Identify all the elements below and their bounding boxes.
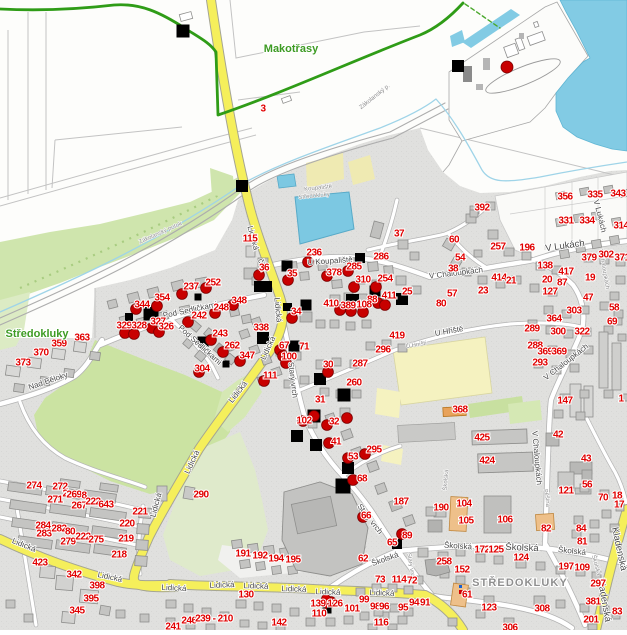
svg-text:322: 322 — [574, 327, 590, 338]
svg-text:152: 152 — [454, 565, 470, 576]
svg-text:221: 221 — [132, 507, 148, 518]
svg-text:83: 83 — [612, 607, 623, 618]
svg-text:389: 389 — [340, 301, 356, 312]
svg-text:56: 56 — [582, 480, 593, 491]
svg-text:354: 354 — [154, 293, 170, 304]
svg-text:242: 242 — [191, 311, 207, 322]
svg-text:Makotřasy: Makotřasy — [264, 43, 319, 55]
svg-text:47: 47 — [583, 293, 594, 304]
svg-text:296: 296 — [375, 345, 391, 356]
svg-text:302: 302 — [598, 250, 614, 261]
svg-text:243: 243 — [212, 329, 228, 340]
svg-text:356: 356 — [557, 192, 573, 203]
svg-text:87: 87 — [557, 278, 568, 289]
svg-text:30: 30 — [323, 360, 334, 371]
svg-text:290: 290 — [193, 490, 209, 501]
svg-text:65: 65 — [387, 538, 398, 549]
svg-text:308: 308 — [534, 604, 550, 615]
svg-text:297: 297 — [590, 579, 606, 590]
svg-text:326: 326 — [158, 322, 174, 333]
svg-text:381: 381 — [585, 597, 601, 608]
svg-text:109: 109 — [574, 563, 590, 574]
svg-text:286: 286 — [373, 252, 389, 263]
svg-text:126: 126 — [327, 599, 343, 610]
svg-text:123: 123 — [481, 603, 497, 614]
svg-text:STŘEDOKLUKY: STŘEDOKLUKY — [472, 576, 568, 589]
svg-text:147: 147 — [557, 396, 573, 407]
svg-text:106: 106 — [497, 515, 513, 526]
svg-text:20: 20 — [542, 275, 553, 286]
svg-text:279: 279 — [60, 537, 76, 548]
svg-text:Středokluky: Středokluky — [6, 328, 70, 340]
svg-text:192: 192 — [252, 551, 268, 562]
svg-text:424: 424 — [479, 456, 495, 467]
svg-text:370: 370 — [33, 348, 49, 359]
svg-text:42: 42 — [553, 430, 564, 441]
svg-text:108: 108 — [356, 300, 372, 311]
svg-text:121: 121 — [558, 486, 574, 497]
svg-text:252: 252 — [205, 278, 221, 289]
svg-text:306: 306 — [502, 623, 518, 631]
svg-text:398: 398 — [89, 581, 105, 592]
svg-text:334: 334 — [579, 216, 595, 227]
svg-text:331: 331 — [558, 216, 574, 227]
svg-text:84: 84 — [576, 524, 587, 535]
svg-text:32: 32 — [329, 417, 340, 428]
svg-text:91: 91 — [420, 598, 431, 609]
svg-text:111: 111 — [263, 371, 278, 382]
svg-text:114: 114 — [392, 575, 408, 586]
svg-text:241: 241 — [165, 622, 181, 631]
svg-text:345: 345 — [69, 606, 85, 617]
svg-text:94: 94 — [409, 598, 420, 609]
svg-text:410: 410 — [323, 299, 339, 310]
svg-text:191: 191 — [235, 549, 251, 560]
svg-text:236: 236 — [306, 248, 322, 259]
svg-text:289: 289 — [524, 324, 540, 335]
svg-text:66: 66 — [361, 511, 372, 522]
svg-text:60: 60 — [449, 235, 460, 246]
svg-text:61: 61 — [462, 590, 473, 601]
svg-text:36: 36 — [259, 263, 270, 274]
svg-text:Lidická: Lidická — [209, 580, 235, 590]
svg-text:Lidická: Lidická — [281, 584, 307, 594]
svg-text:187: 187 — [393, 497, 409, 508]
svg-text:378: 378 — [326, 268, 342, 279]
svg-text:218: 218 — [111, 550, 127, 561]
svg-text:328: 328 — [131, 321, 147, 332]
svg-text:369: 369 — [551, 347, 567, 358]
svg-text:368: 368 — [452, 405, 468, 416]
svg-text:411: 411 — [382, 291, 398, 302]
svg-text:95: 95 — [398, 603, 409, 614]
svg-text:239 - 210: 239 - 210 — [195, 614, 234, 625]
svg-text:58: 58 — [609, 303, 620, 314]
svg-text:34: 34 — [291, 307, 302, 318]
svg-text:344: 344 — [134, 300, 150, 311]
svg-text:219: 219 — [118, 534, 134, 545]
svg-text:110: 110 — [312, 609, 328, 620]
svg-text:80: 80 — [436, 299, 447, 310]
svg-text:423: 423 — [32, 558, 48, 569]
svg-text:338: 338 — [253, 323, 269, 334]
svg-text:195: 195 — [285, 555, 301, 566]
svg-text:417: 417 — [558, 267, 574, 278]
svg-text:257: 257 — [490, 242, 506, 253]
svg-text:260: 260 — [346, 378, 362, 389]
svg-text:643: 643 — [98, 500, 114, 511]
svg-text:105: 105 — [458, 516, 474, 527]
svg-text:72: 72 — [407, 576, 418, 587]
svg-text:348: 348 — [231, 296, 247, 307]
svg-text:38: 38 — [448, 264, 459, 275]
svg-text:81: 81 — [577, 537, 588, 548]
svg-text:Lidická: Lidická — [161, 583, 187, 593]
svg-text:53: 53 — [348, 452, 359, 463]
svg-text:41: 41 — [331, 437, 342, 448]
svg-text:62: 62 — [358, 554, 369, 565]
svg-text:138: 138 — [537, 261, 553, 272]
svg-text:96: 96 — [379, 602, 390, 613]
svg-text:69: 69 — [607, 317, 618, 328]
svg-text:104: 104 — [456, 499, 472, 510]
svg-text:100: 100 — [281, 352, 297, 363]
svg-text:37: 37 — [394, 229, 405, 240]
svg-text:197: 197 — [558, 562, 574, 573]
svg-text:262: 262 — [224, 341, 240, 352]
svg-text:283: 283 — [36, 529, 52, 540]
svg-text:371: 371 — [614, 253, 627, 264]
svg-text:19: 19 — [585, 273, 596, 284]
svg-text:125: 125 — [488, 545, 504, 556]
svg-text:115: 115 — [243, 234, 259, 245]
svg-text:293: 293 — [532, 358, 548, 369]
svg-text:70: 70 — [598, 493, 609, 504]
svg-text:314: 314 — [613, 221, 627, 232]
svg-text:248: 248 — [213, 303, 229, 314]
svg-text:25: 25 — [402, 287, 413, 298]
svg-text:102: 102 — [296, 416, 312, 427]
svg-text:196: 196 — [519, 243, 535, 254]
svg-text:275: 275 — [88, 535, 104, 546]
svg-text:142: 142 — [271, 618, 287, 629]
svg-text:190: 190 — [433, 503, 449, 514]
svg-text:364: 364 — [546, 314, 562, 325]
svg-text:363: 363 — [74, 333, 90, 344]
svg-text:335: 335 — [587, 190, 603, 201]
svg-text:127: 127 — [542, 287, 558, 298]
svg-text:342: 342 — [66, 570, 82, 581]
svg-text:304: 304 — [194, 364, 210, 375]
svg-text:295: 295 — [366, 445, 382, 456]
svg-text:89: 89 — [402, 531, 413, 542]
svg-text:392: 392 — [474, 203, 490, 214]
svg-text:425: 425 — [474, 433, 490, 444]
svg-text:237: 237 — [183, 282, 199, 293]
svg-text:130: 130 — [238, 590, 254, 601]
svg-text:419: 419 — [389, 331, 405, 342]
svg-text:395: 395 — [83, 594, 99, 605]
svg-text:258: 258 — [436, 557, 452, 568]
svg-text:17: 17 — [614, 500, 625, 511]
svg-text:43: 43 — [581, 454, 592, 465]
svg-text:347: 347 — [239, 351, 255, 362]
svg-text:54: 54 — [455, 253, 466, 264]
svg-text:35: 35 — [287, 269, 298, 280]
svg-text:300: 300 — [550, 327, 566, 338]
svg-text:31: 31 — [315, 395, 326, 406]
svg-text:201: 201 — [583, 615, 599, 626]
svg-text:254: 254 — [377, 274, 393, 285]
svg-text:99: 99 — [359, 595, 370, 606]
svg-text:67: 67 — [279, 341, 290, 352]
svg-text:285: 285 — [346, 262, 362, 273]
svg-text:303: 303 — [566, 306, 582, 317]
svg-text:310: 310 — [355, 275, 371, 286]
svg-text:21: 21 — [506, 276, 517, 287]
svg-text:359: 359 — [51, 339, 67, 350]
svg-text:269: 269 — [66, 490, 82, 501]
svg-text:274: 274 — [26, 481, 42, 492]
svg-text:23: 23 — [478, 286, 489, 297]
svg-text:71: 71 — [299, 342, 310, 353]
svg-text:57: 57 — [447, 289, 458, 300]
svg-text:379: 379 — [581, 253, 597, 264]
svg-text:194: 194 — [268, 554, 284, 565]
svg-text:Lidická: Lidická — [315, 587, 341, 597]
svg-text:271: 271 — [47, 495, 63, 506]
svg-text:329: 329 — [116, 321, 132, 332]
svg-text:220: 220 — [119, 519, 135, 530]
svg-text:68: 68 — [357, 474, 368, 485]
svg-text:124: 124 — [513, 553, 529, 564]
svg-text:82: 82 — [541, 524, 552, 535]
svg-text:343: 343 — [610, 189, 626, 200]
svg-text:373: 373 — [15, 358, 31, 369]
svg-text:73: 73 — [375, 575, 386, 586]
svg-text:287: 287 — [352, 359, 368, 370]
svg-text:116: 116 — [374, 618, 390, 629]
svg-text:Lidická: Lidická — [369, 588, 395, 598]
